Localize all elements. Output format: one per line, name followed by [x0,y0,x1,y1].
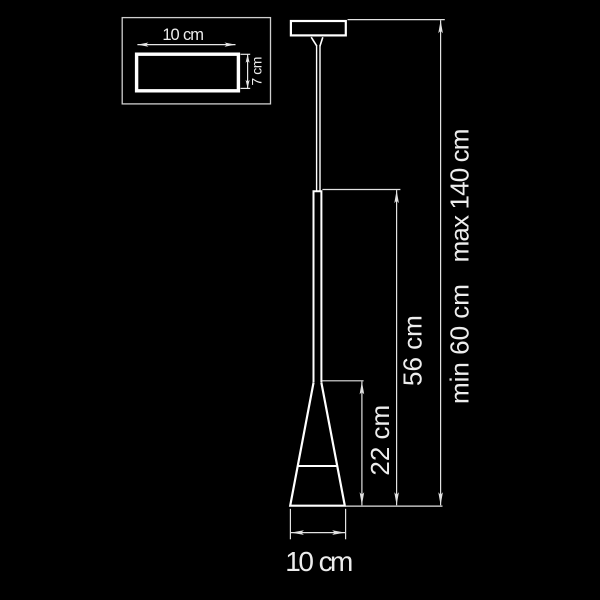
svg-text:7 cm: 7 cm [249,57,265,86]
svg-text:max 140 cm: max 140 cm [444,129,474,262]
svg-text:10 cm: 10 cm [285,546,352,577]
svg-text:10 cm: 10 cm [162,26,203,44]
svg-text:56 cm: 56 cm [398,315,428,386]
svg-text:min 60 cm: min 60 cm [444,284,474,404]
svg-text:22 cm: 22 cm [365,405,395,476]
